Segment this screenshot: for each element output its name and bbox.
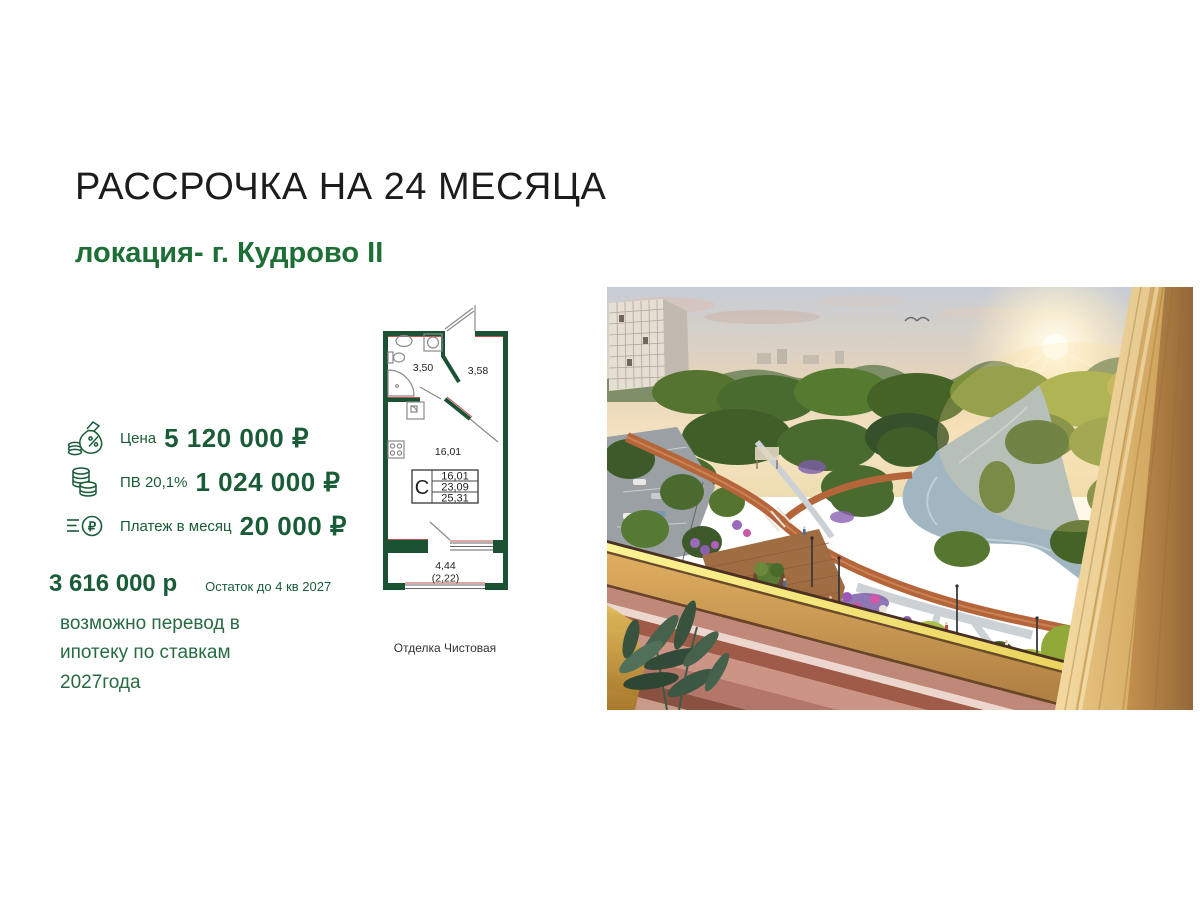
monthly-label: Платеж в месяц bbox=[120, 518, 232, 535]
ruble-glyph: ₽ bbox=[88, 519, 97, 534]
downpayment-value: 1 024 000 ₽ bbox=[196, 467, 341, 498]
area-table: С 16,01 23,09 25,31 bbox=[412, 470, 478, 505]
appliance-icons bbox=[388, 402, 424, 458]
washer-icon bbox=[407, 402, 424, 419]
view-photo bbox=[607, 287, 1193, 710]
price-row-monthly: ₽ Платеж в месяц 20 000 ₽ bbox=[62, 504, 347, 548]
money-bag-percent-icon bbox=[62, 419, 108, 457]
sink-icon bbox=[396, 336, 412, 347]
area3-cell: 25,31 bbox=[441, 493, 469, 505]
coin-stacks-icon bbox=[62, 464, 108, 500]
page-title: РАССРОЧКА НА 24 МЕСЯЦА bbox=[75, 166, 606, 209]
floorplan-wall-diagonals bbox=[443, 356, 470, 419]
stove-icon bbox=[388, 441, 404, 458]
balcony-reduced-label: (2,22) bbox=[432, 573, 459, 585]
price-label: Цена bbox=[120, 430, 156, 447]
toilet-icon bbox=[388, 352, 393, 363]
window-icon bbox=[450, 543, 493, 550]
downpayment-label: ПВ 20,1% bbox=[120, 474, 188, 491]
finish-caption: Отделка Чистовая bbox=[370, 641, 520, 655]
remainder-value: 3 616 000 р bbox=[49, 570, 177, 598]
monthly-value: 20 000 ₽ bbox=[240, 511, 347, 542]
shower-icon bbox=[388, 370, 414, 396]
bathroom-area-label: 3,50 bbox=[413, 362, 434, 374]
balcony-area-label: 4,44 bbox=[435, 560, 456, 572]
mortgage-note: возможно перевод в ипотеку по ставкам 20… bbox=[60, 609, 268, 697]
presentation-slide: РАССРОЧКА НА 24 МЕСЯЦА локация- г. Кудро… bbox=[0, 0, 1200, 900]
living-area-label: 16,01 bbox=[435, 446, 461, 458]
remainder-note: Остаток до 4 кв 2027 bbox=[205, 579, 331, 594]
remainder-row: 3 616 000 р Остаток до 4 кв 2027 bbox=[49, 570, 331, 598]
unit-type-label: С bbox=[415, 477, 429, 499]
location-subtitle: локация- г. Кудрово II bbox=[75, 237, 383, 270]
balcony-rail-lines bbox=[405, 585, 485, 589]
price-value: 5 120 000 ₽ bbox=[164, 423, 309, 454]
price-row-downpayment: ПВ 20,1% 1 024 000 ₽ bbox=[62, 460, 340, 504]
floorplan-doors bbox=[420, 305, 498, 540]
payment-ruble-icon: ₽ bbox=[62, 510, 108, 542]
price-row-price: Цена 5 120 000 ₽ bbox=[62, 416, 309, 460]
hallway-area-label: 3,58 bbox=[468, 365, 489, 377]
floorplan-walls bbox=[383, 331, 508, 590]
floorplan: 3,50 3,58 16,01 4,44 (2,22) С 16,01 23,0… bbox=[370, 295, 520, 615]
